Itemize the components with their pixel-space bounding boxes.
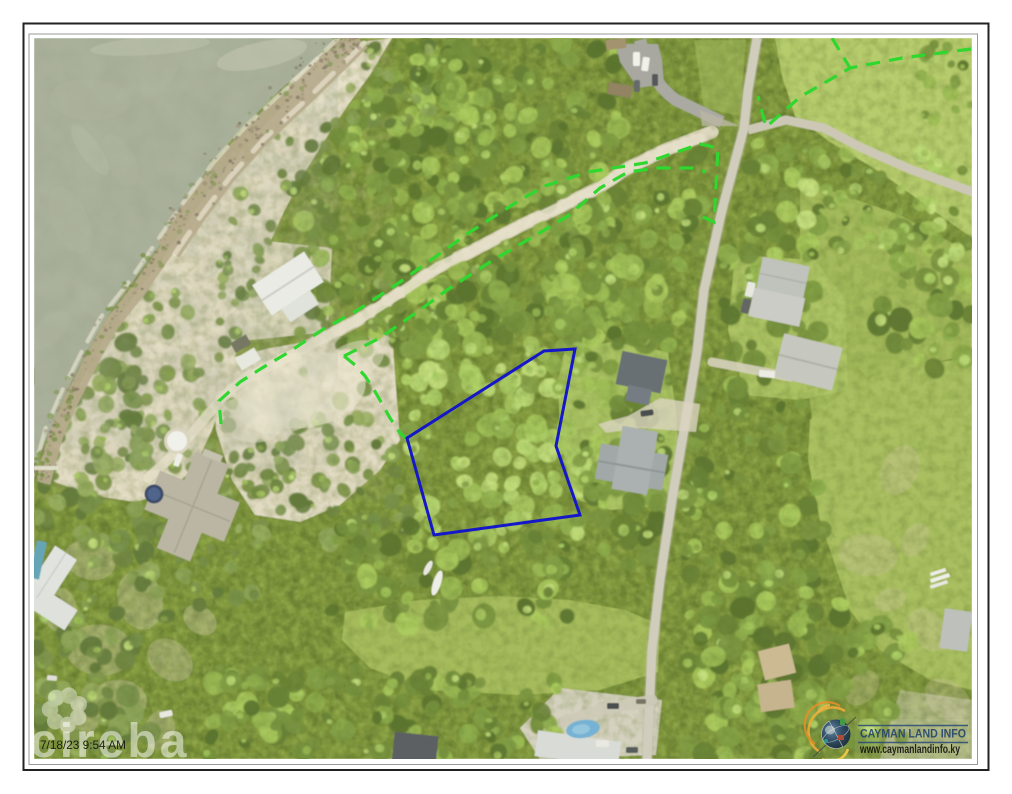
svg-text:CAYMAN LAND INFO: CAYMAN LAND INFO bbox=[860, 727, 966, 741]
svg-text:7/18/23 9:54 AM: 7/18/23 9:54 AM bbox=[40, 738, 126, 752]
svg-text:www.caymanlandinfo.ky: www.caymanlandinfo.ky bbox=[859, 742, 960, 756]
